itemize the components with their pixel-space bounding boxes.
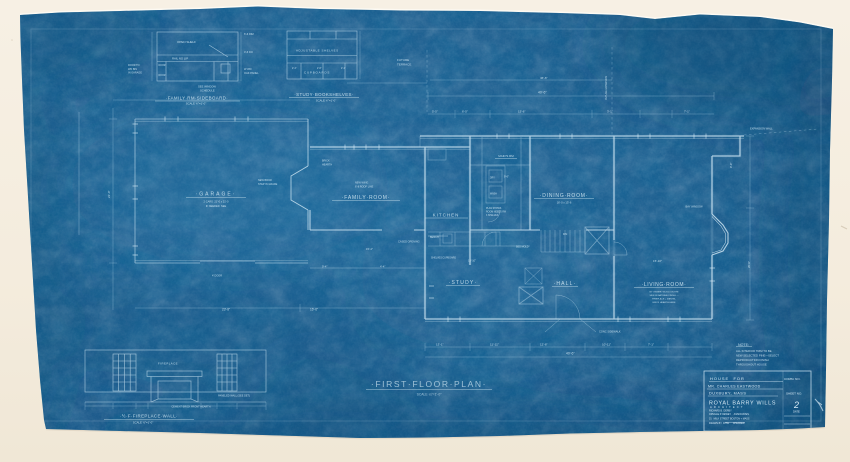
svg-text:MAID'S RM: MAID'S RM bbox=[498, 154, 514, 158]
svg-text:CEMENT BRICK FRONT HEARTH: CEMENT BRICK FRONT HEARTH bbox=[171, 406, 210, 409]
svg-text:ORVILLE P. DEWEY ASSOCIATES: ORVILLE P. DEWEY ASSOCIATES bbox=[709, 413, 749, 416]
svg-text:RAIL NO LIP: RAIL NO LIP bbox=[172, 57, 188, 61]
svg-text:9'-6": 9'-6" bbox=[504, 176, 509, 179]
svg-text:BRICK HEARTH HERE: BRICK HEARTH HERE bbox=[653, 301, 676, 304]
svg-text:2 CARS 21'-0 x 21'-0: 2 CARS 21'-0 x 21'-0 bbox=[204, 200, 229, 204]
svg-text:RICHARD B. DERBY: RICHARD B. DERBY bbox=[709, 410, 732, 413]
svg-text:NEW SELECTED PINE—SELECT: NEW SELECTED PINE—SELECT bbox=[736, 354, 779, 358]
svg-text:2'-6": 2'-6" bbox=[317, 68, 322, 70]
svg-text:6'-5": 6'-5" bbox=[462, 110, 468, 114]
svg-text:4'-4": 4'-4" bbox=[380, 265, 385, 269]
svg-text:3 SHELVES: 3 SHELVES bbox=[486, 215, 499, 217]
svg-text:16'-6": 16'-6" bbox=[310, 308, 318, 312]
svg-text:3'-1": 3'-1" bbox=[607, 110, 613, 114]
svg-text:FUTURE: FUTURE bbox=[397, 58, 409, 62]
svg-text:21'-0": 21'-0" bbox=[107, 190, 111, 198]
svg-text:40'-6": 40'-6" bbox=[538, 91, 547, 95]
svg-text:2'-1": 2'-1" bbox=[292, 68, 297, 70]
svg-text:NEW WING: NEW WING bbox=[355, 182, 368, 185]
svg-text:·STUDY·BOOKSHELVES·: ·STUDY·BOOKSHELVES· bbox=[294, 92, 353, 97]
svg-text:DOOR TO: DOOR TO bbox=[128, 64, 140, 67]
svg-text:ARCHITECT: ARCHITECT bbox=[710, 405, 745, 409]
svg-text:BY OWNER: WOOD ON THE: BY OWNER: WOOD ON THE bbox=[650, 292, 680, 294]
svg-text:HEARTH: HEARTH bbox=[322, 164, 332, 167]
svg-text:DOOR: DOOR bbox=[159, 65, 166, 67]
svg-text:DOOR: DOOR bbox=[159, 75, 166, 77]
svg-text:DUXBURY, MASS: DUXBURY, MASS bbox=[709, 392, 746, 396]
svg-text:WD BIN: WD BIN bbox=[128, 68, 137, 71]
svg-text:WASH: WASH bbox=[490, 193, 497, 196]
svg-text:10'-11": 10'-11" bbox=[602, 343, 611, 347]
svg-text:EXPANSION WALL: EXPANSION WALL bbox=[750, 127, 773, 131]
svg-text:SHELVES CUPBOARD: SHELVES CUPBOARD bbox=[431, 257, 456, 260]
svg-text:FUTURE EXPANSION: FUTURE EXPANSION bbox=[605, 76, 608, 100]
svg-text:26'-6": 26'-6" bbox=[747, 261, 751, 268]
svg-text:ROOM NEEDS RM: ROOM NEEDS RM bbox=[486, 212, 506, 214]
svg-text:15'-10": 15'-10" bbox=[653, 259, 662, 263]
svg-text:31 MILK STREET BOSTON + MASS: 31 MILK STREET BOSTON + MASS bbox=[709, 418, 750, 421]
svg-text:ALL INTERIOR TRIM TO BE: ALL INTERIOR TRIM TO BE bbox=[736, 349, 772, 353]
svg-text:FIREPLACE + MANTEL: FIREPLACE + MANTEL bbox=[652, 298, 676, 301]
svg-text:CONC SIDEWALK: CONC SIDEWALK bbox=[599, 330, 621, 334]
svg-text:13'-1": 13'-1" bbox=[436, 343, 444, 347]
svg-text:SIDE IN NATURAL FINISH —: SIDE IN NATURAL FINISH — bbox=[649, 294, 679, 297]
svg-text:7'-1": 7'-1" bbox=[684, 110, 690, 114]
svg-text:IF NEEDED SEE: IF NEEDED SEE bbox=[206, 204, 227, 208]
svg-text:·LIVING·ROOM·: ·LIVING·ROOM· bbox=[642, 282, 687, 288]
svg-text:4'-6 DO: 4'-6 DO bbox=[244, 50, 253, 54]
svg-text:DRY: DRY bbox=[490, 178, 495, 180]
svg-text:·FAMILY·ROOM·: ·FAMILY·ROOM· bbox=[342, 195, 390, 201]
svg-text:ADJUSTABLE SHELVES: ADJUSTABLE SHELVES bbox=[296, 49, 339, 53]
svg-text:15'-4": 15'-4" bbox=[366, 247, 373, 251]
svg-text:4' DOOR: 4' DOOR bbox=[212, 275, 222, 278]
svg-text:KITCHEN: KITCHEN bbox=[433, 213, 460, 218]
svg-text:23'-8": 23'-8" bbox=[222, 308, 230, 312]
svg-text:TERRACE: TERRACE bbox=[397, 63, 411, 67]
svg-text:IN GARAGE: IN GARAGE bbox=[128, 72, 142, 75]
svg-text:DATE: DATE bbox=[793, 410, 800, 414]
svg-text:·STUDY·: ·STUDY· bbox=[449, 280, 478, 286]
svg-text:12'-8": 12'-8" bbox=[540, 343, 548, 347]
svg-text:·GARAGE·: ·GARAGE· bbox=[196, 192, 237, 198]
svg-text:46'-6": 46'-6" bbox=[540, 76, 548, 80]
svg-text:HOUSE FOR: HOUSE FOR bbox=[710, 376, 745, 381]
svg-text:SCHEDULE: SCHEDULE bbox=[200, 88, 215, 92]
svg-text:15'-6": 15'-6" bbox=[518, 110, 525, 114]
svg-text:THROUGHOUT HOUSE: THROUGHOUT HOUSE bbox=[736, 363, 767, 367]
svg-text:COMM. NO.: COMM. NO. bbox=[784, 377, 801, 381]
svg-text:6'-6 RIM: 6'-6 RIM bbox=[244, 32, 254, 36]
svg-text:5'-5": 5'-5" bbox=[432, 110, 438, 114]
svg-text:CASED OPENING: CASED OPENING bbox=[398, 240, 420, 244]
svg-text:BAY WINDOW: BAY WINDOW bbox=[685, 205, 703, 209]
svg-text:2: 2 bbox=[793, 400, 799, 410]
svg-text:SCALE ½"=1'-0": SCALE ½"=1'-0" bbox=[133, 421, 153, 425]
svg-text:BRICK: BRICK bbox=[322, 160, 330, 163]
svg-text:SCALE ¼"=1'-0": SCALE ¼"=1'-0" bbox=[417, 393, 443, 397]
svg-text:SHEET NO.: SHEET NO. bbox=[786, 392, 802, 396]
svg-text:·DINING·ROOM·: ·DINING·ROOM· bbox=[540, 193, 588, 199]
svg-text:40'-6": 40'-6" bbox=[566, 352, 575, 356]
svg-text:DN: DN bbox=[563, 232, 567, 236]
svg-text:NEW BRICK: NEW BRICK bbox=[258, 179, 273, 182]
svg-text:16'-0 x 13'-6: 16'-0 x 13'-6 bbox=[557, 201, 572, 205]
svg-text:CUPBOARDS: CUPBOARDS bbox=[304, 71, 330, 75]
svg-text:BED MOLD: BED MOLD bbox=[516, 246, 529, 249]
svg-text:SCALE ¼"=1'-0": SCALE ¼"=1'-0" bbox=[186, 102, 206, 106]
svg-text:REPRODUCTION FINISH: REPRODUCTION FINISH bbox=[736, 358, 769, 362]
svg-text:6'-8 ROOF LINE: 6'-8 ROOF LINE bbox=[355, 186, 374, 189]
svg-text:STEP IN GRADE: STEP IN GRADE bbox=[258, 183, 278, 186]
svg-text:15'-10": 15'-10" bbox=[468, 259, 476, 263]
svg-text:9'-4": 9'-4" bbox=[322, 265, 327, 269]
svg-text:W WD: W WD bbox=[244, 67, 252, 71]
svg-text:PLAN SHOWS: PLAN SHOWS bbox=[486, 207, 502, 210]
svg-text:PANELED WALL (SEE DET): PANELED WALL (SEE DET) bbox=[218, 395, 250, 398]
svg-text:11'-11": 11'-11" bbox=[490, 343, 499, 347]
svg-text:FIREPLACE: FIREPLACE bbox=[158, 362, 178, 366]
svg-text:SEE WINDOW: SEE WINDOW bbox=[198, 85, 216, 89]
svg-text:SCALE ¼"=1'-0": SCALE ¼"=1'-0" bbox=[316, 99, 336, 103]
svg-text:·FAMILY·RM·SIDEBOARD·: ·FAMILY·RM·SIDEBOARD· bbox=[166, 96, 228, 101]
svg-text:7'-1": 7'-1" bbox=[648, 343, 654, 347]
svg-text:MR. CHARLES EASTWOOD: MR. CHARLES EASTWOOD bbox=[708, 385, 761, 389]
svg-text:OAK PANEL: OAK PANEL bbox=[244, 71, 259, 75]
svg-text:2'-1": 2'-1" bbox=[341, 68, 346, 70]
svg-text:OPEN SHELF: OPEN SHELF bbox=[177, 40, 196, 44]
svg-text:9'-0": 9'-0" bbox=[729, 163, 733, 168]
svg-text:·HALL·: ·HALL· bbox=[553, 281, 576, 287]
svg-text:·½·F·FIREPLACE·WALL·: ·½·F·FIREPLACE·WALL· bbox=[120, 414, 178, 419]
svg-text:BENCH: BENCH bbox=[430, 236, 439, 239]
svg-text:·FIRST·FLOOR·PLAN·: ·FIRST·FLOOR·PLAN· bbox=[371, 379, 487, 389]
